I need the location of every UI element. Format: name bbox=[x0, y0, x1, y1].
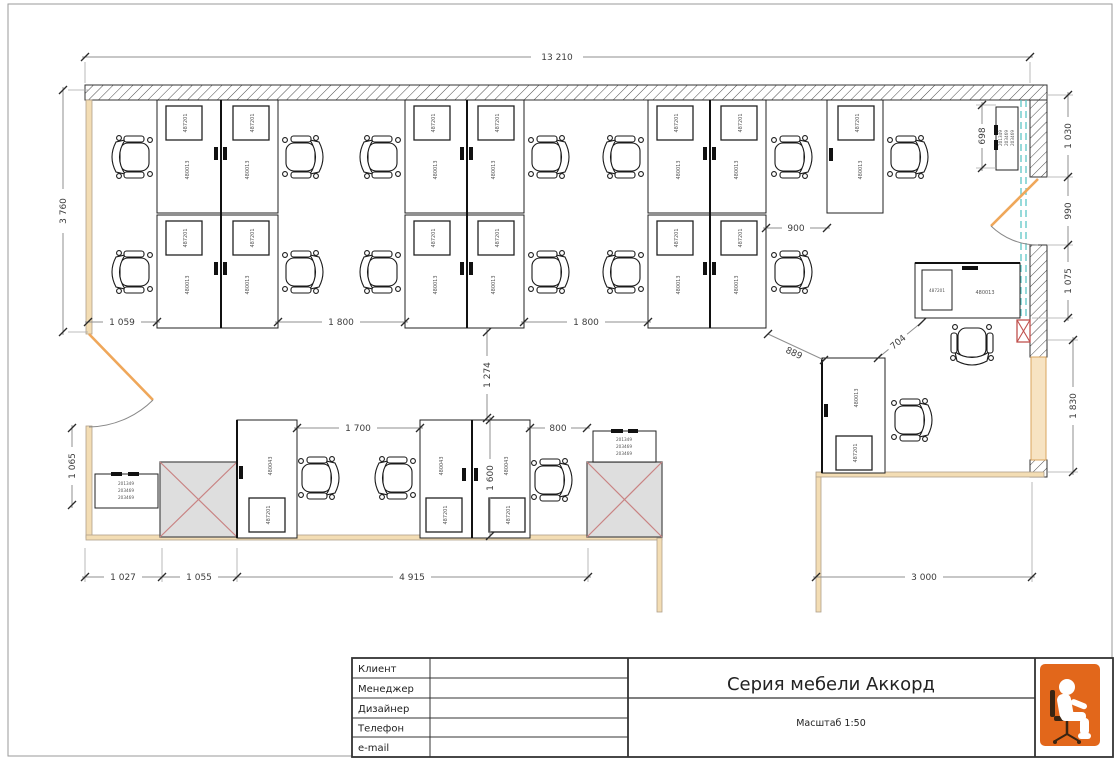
dim-text: 900 bbox=[787, 224, 804, 234]
desk-code: 480013 bbox=[433, 275, 439, 294]
desk-code: 480013 bbox=[245, 160, 251, 179]
column-1 bbox=[160, 462, 237, 537]
dim-text: 1 800 bbox=[573, 318, 599, 328]
field-label-designer: Дизайнер bbox=[358, 704, 409, 715]
dim-text: 1 059 bbox=[109, 318, 135, 328]
cabinet-code: 203469 bbox=[616, 444, 632, 449]
field-label-client: Клиент bbox=[358, 664, 397, 675]
desk-code: 480013 bbox=[858, 160, 864, 179]
right-wall-upper bbox=[1030, 100, 1047, 177]
dim-text: 1 065 bbox=[68, 453, 78, 479]
storage-cabinet-left: 201349 203469 203469 bbox=[95, 472, 158, 508]
red-cross-marker bbox=[1017, 320, 1030, 342]
cabinet-code: 203469 bbox=[1010, 130, 1015, 146]
desk-code: 480013 bbox=[433, 160, 439, 179]
cabinet-code: 201349 bbox=[118, 481, 134, 486]
left-wall-upper bbox=[86, 100, 92, 334]
cabinet-code: 203469 bbox=[118, 495, 134, 500]
dim-text: 800 bbox=[549, 424, 566, 434]
desk-code: 480043 bbox=[268, 456, 274, 475]
dim-text: 3 760 bbox=[59, 198, 69, 224]
right-wall-mid bbox=[1030, 245, 1047, 357]
dim-text: 1 830 bbox=[1069, 393, 1079, 419]
dim-text: 3 000 bbox=[911, 573, 937, 583]
right-wood-partition bbox=[1031, 357, 1046, 460]
pedestal-code: 487201 bbox=[929, 288, 945, 293]
column-2 bbox=[587, 462, 662, 537]
dim-text: 4 915 bbox=[399, 573, 425, 583]
cabinet-code: 203469 bbox=[118, 488, 134, 493]
bottom-left-partition-return bbox=[657, 538, 662, 612]
dim-text: 1 700 bbox=[345, 424, 371, 434]
dim-text: 1 030 bbox=[1064, 123, 1074, 149]
desk-code: 480013 bbox=[245, 275, 251, 294]
desk-code: 480013 bbox=[491, 275, 497, 294]
dim-text: 1 055 bbox=[186, 573, 212, 583]
storage-cabinet-mid: 201349 203469 203469 bbox=[593, 429, 656, 462]
cabinet-code: 203469 bbox=[1004, 130, 1009, 146]
desk-code: 480013 bbox=[676, 275, 682, 294]
desk-code: 480013 bbox=[185, 275, 191, 294]
desk-code: 480013 bbox=[491, 160, 497, 179]
bottom-right-partition-return bbox=[816, 477, 821, 612]
title-block: Клиент Менеджер Дизайнер Телефон e-mail … bbox=[352, 658, 1113, 757]
floor-plan-drawing: 487201 bbox=[0, 0, 1120, 760]
left-wall-lower bbox=[86, 426, 92, 538]
dim-text: 13 210 bbox=[541, 53, 573, 63]
drawing-title: Серия мебели Аккорд bbox=[727, 674, 935, 695]
cabinet-code: 201349 bbox=[998, 130, 1003, 146]
field-label-manager: Менеджер bbox=[358, 684, 414, 695]
dim-text: 1 027 bbox=[110, 573, 136, 583]
desk-code: 480013 bbox=[734, 275, 740, 294]
floor-plan-page: 487201 bbox=[0, 0, 1120, 760]
desk-code: 480013 bbox=[676, 160, 682, 179]
desk-code: 480043 bbox=[504, 456, 510, 475]
storage-cabinet-topright: 201349 203469 203469 bbox=[994, 107, 1018, 170]
desk-code: 480013 bbox=[854, 388, 860, 407]
dim-text: 1 075 bbox=[1064, 268, 1074, 294]
desk-code: 480013 bbox=[975, 290, 994, 296]
dim-text: 698 bbox=[978, 127, 988, 144]
field-label-email: e-mail bbox=[358, 743, 389, 754]
desk-code: 480043 bbox=[439, 456, 445, 475]
dim-text: 1 274 bbox=[483, 362, 493, 388]
dim-text: 990 bbox=[1064, 202, 1074, 219]
dim-text: 1 800 bbox=[328, 318, 354, 328]
desk-code: 480013 bbox=[734, 160, 740, 179]
dim-text: 1 600 bbox=[486, 465, 496, 491]
cabinet-code: 203469 bbox=[616, 451, 632, 456]
brand-logo bbox=[1040, 664, 1100, 746]
cabinet-code: 201349 bbox=[616, 437, 632, 442]
field-label-phone: Телефон bbox=[357, 724, 404, 735]
desk-code: 480013 bbox=[185, 160, 191, 179]
top-wall bbox=[85, 85, 1047, 100]
drawing-scale: Масштаб 1:50 bbox=[796, 718, 866, 729]
